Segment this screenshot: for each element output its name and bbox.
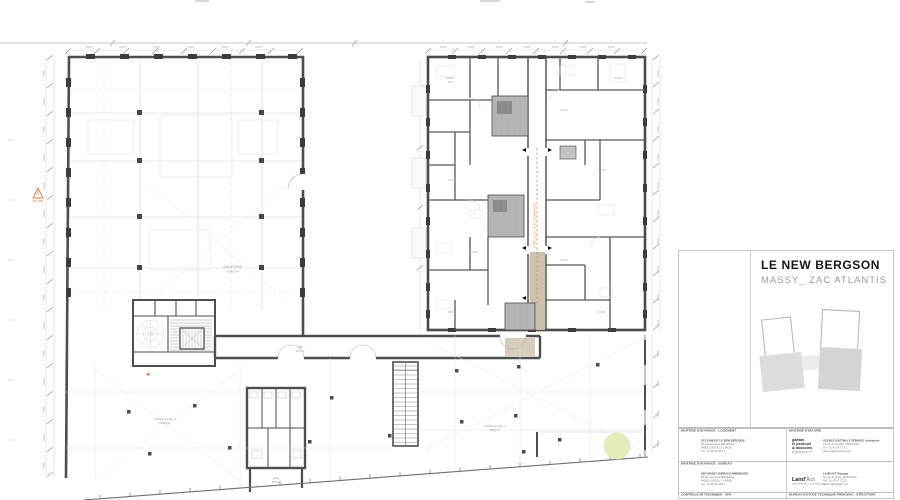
- moa-bureau-line4: Tél : 01 45 60 48 11: [701, 483, 786, 487]
- corridor-door-arcs: [278, 336, 526, 358]
- sanitary-block: Local 28.5 m²: [247, 388, 305, 492]
- hall-label: Hall: [297, 345, 303, 349]
- right-building: CIRCULATION COMMUNE: [412, 55, 647, 332]
- ct-header: CONTROLEUR TECHNIQUE - SPS: [679, 493, 786, 497]
- moa-bureau-address: SNC MASSY BUREAUX IMMOBILIER 50 Avenue d…: [701, 472, 786, 487]
- row-moa-bureau-body: SNC MASSY BUREAUX IMMOBILIER 50 Avenue d…: [679, 469, 893, 492]
- stair-elevator-core-1: [492, 96, 528, 136]
- landscape-logo: Land'Act paysagistes concepteurs: [792, 476, 825, 486]
- duct-core: [560, 146, 576, 159]
- left-building-wall-columns: [66, 54, 305, 297]
- shopping-area-label: 1496.0 m²: [227, 270, 239, 274]
- floor-plan-svg: SHOPPING 1496.0 m² Hall 62.5 m² Local 28…: [0, 0, 676, 500]
- local-label: Local: [273, 476, 280, 480]
- title-block: LE NEW BERGSON MASSY_ ZAC ATLANTIS MAITR…: [678, 250, 894, 499]
- lower-zone-columns: [127, 363, 600, 456]
- architect-logo: gaëtan le penhuel & associés architectes: [792, 438, 812, 455]
- spiral-stair: [137, 321, 164, 348]
- orange-marker-small: [147, 373, 150, 376]
- architect-logo-line3: & associés: [792, 446, 812, 450]
- massing-box-outline-1: [761, 317, 795, 358]
- moa-bureau-header: MAITRISE D'OUVRAGE - BUREAU: [679, 462, 786, 466]
- moa-logement-header: MAITRISE D'OUVRAGE - LOGEMENT: [679, 429, 786, 433]
- drawing-sheet: { "colors": { "wall": "#4e4e4e", "thin_l…: [0, 0, 900, 500]
- property-line: [84, 457, 648, 500]
- left-building-diagonals: [150, 185, 285, 300]
- stair-elevator-core-3: [505, 303, 535, 330]
- left-building-door-gap: [300, 174, 306, 190]
- project-title: LE NEW BERGSON: [761, 258, 887, 272]
- title-block-title-area: LE NEW BERGSON MASSY_ ZAC ATLANTIS: [751, 251, 893, 427]
- hall-area-label: 62.5 m²: [296, 349, 305, 353]
- bet-header: BUREAU D'ETUDE TECHNIQUE PRINCIPAL - STR…: [787, 493, 893, 497]
- tree-symbol: [604, 433, 631, 460]
- shopping-label: SHOPPING: [223, 265, 242, 269]
- architect-logo-sub: architectes: [792, 451, 812, 455]
- moe-header: MAITRISE D'OEUVRE: [787, 429, 893, 433]
- stair-elevator-core-2: [488, 195, 524, 237]
- massing-box-fill-1: [759, 352, 805, 392]
- left-stair-core: [133, 300, 215, 376]
- balconies: [412, 86, 426, 258]
- orange-survey-marker: [33, 188, 43, 201]
- moa-logement-address: SCCV MASSY LE NEW BERGSON 50 Avenue de l…: [701, 439, 786, 454]
- row-controle-header: CONTROLEUR TECHNIQUE - SPS BUREAU D'ETUD…: [679, 492, 893, 499]
- massing-box-fill-2: [818, 347, 862, 391]
- architect-address: AGENCE GAETAN LE PENHUEL Architectes 21 …: [823, 439, 893, 454]
- landscape-address: LAND'ACT Paysage 31 rue de Gray, 75010 P…: [823, 472, 893, 487]
- title-block-top: LE NEW BERGSON MASSY_ ZAC ATLANTIS: [679, 251, 893, 428]
- row-moa-logement-body: SCCV MASSY LE NEW BERGSON 50 Avenue de l…: [679, 436, 893, 461]
- left-building-room-outlines: [88, 115, 278, 270]
- sanitary-shaft-walls: [250, 468, 302, 492]
- circulation-label: CIRCULATION COMMUNE: [533, 202, 537, 248]
- surface2-label: Surface à louer_2: [484, 424, 507, 428]
- corridor-walls: [215, 336, 540, 358]
- massing-diagram: [761, 298, 887, 402]
- local-area-label: 28.5 m²: [272, 481, 280, 484]
- moa-logement-line4: Tél : 01 45 60 48 11: [701, 450, 786, 454]
- architect-line4: agence@lepenhuel.net: [823, 450, 893, 454]
- left-building-grid-dashed: [69, 57, 303, 310]
- property-line-ticks: [100, 454, 640, 499]
- landscape-logo-sub: paysagistes concepteurs: [792, 482, 825, 486]
- title-block-key-column: [679, 251, 751, 427]
- corridor-band: Hall 62.5 m²: [215, 336, 540, 358]
- hatched-stair: [393, 362, 418, 446]
- landscape-line4: agence@landact.net: [823, 483, 893, 487]
- project-subtitle: MASSY_ ZAC ATLANTIS: [761, 275, 887, 286]
- surface2-area-label: 456.2 m²: [490, 428, 500, 432]
- row-moa-logement-header: MAITRISE D'OUVRAGE - LOGEMENT MAITRISE D…: [679, 428, 893, 436]
- surface1-label: Surface à louer_1: [154, 417, 177, 421]
- surface1-area-label: 1093.5 m²: [159, 421, 171, 425]
- row-moa-bureau-header: MAITRISE D'OUVRAGE - BUREAU: [679, 461, 893, 469]
